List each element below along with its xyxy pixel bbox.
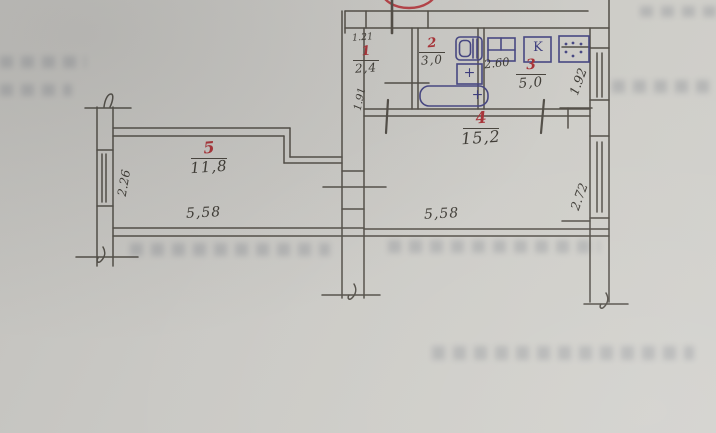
cupboard-letter: K — [527, 40, 549, 55]
tick-curl — [348, 284, 356, 299]
room5-walls — [113, 128, 364, 236]
window-kitchen — [590, 48, 609, 100]
tick-curl — [97, 247, 105, 262]
room-1-number: 1 — [346, 43, 387, 59]
sink-tap-mark: + — [461, 65, 478, 81]
tick-curl — [600, 293, 608, 308]
tick-curl — [104, 94, 113, 107]
bath-tap-mark: + — [469, 87, 486, 103]
door-mark — [386, 100, 388, 133]
room-2-area: 3,0 — [414, 53, 451, 68]
room-4-label: 4 15,2 — [454, 110, 508, 147]
dim-room4-width: 5,58 — [424, 205, 460, 223]
red-circle-annotation — [382, 0, 436, 8]
stove-icon — [559, 36, 589, 62]
window-room5 — [97, 150, 113, 206]
room-1-area: 2,4 — [346, 61, 387, 76]
room-3-number: 3 — [509, 56, 552, 74]
right-wall — [560, 0, 628, 308]
dim-kitchen-width: 2.60 — [483, 55, 510, 72]
scanned-floorplan-photo: 1 2,4 2 3,0 3 5,0 4 15,2 5 11,8 1.21 1.9… — [0, 0, 716, 433]
top-entrance-wall — [345, 11, 609, 33]
room-3-label: 3 5,0 — [510, 58, 552, 90]
room-4-number: 4 — [453, 108, 508, 129]
room-5-area: 11,8 — [182, 158, 237, 177]
room-2-number: 2 — [414, 35, 451, 51]
room-5-label: 5 11,8 — [182, 140, 236, 176]
door-mark — [541, 100, 544, 133]
room-1-label: 1 2,4 — [346, 45, 386, 75]
room-4-area: 15,2 — [453, 128, 508, 149]
dim-hall-depth: 1.21 — [352, 31, 374, 43]
room4-bottom-wall — [364, 229, 609, 236]
room-3-area: 5,0 — [510, 75, 553, 92]
room-2-label: 2 3,0 — [414, 37, 450, 67]
dim-room5-width: 5,58 — [186, 204, 222, 222]
room-5-number: 5 — [181, 138, 236, 159]
